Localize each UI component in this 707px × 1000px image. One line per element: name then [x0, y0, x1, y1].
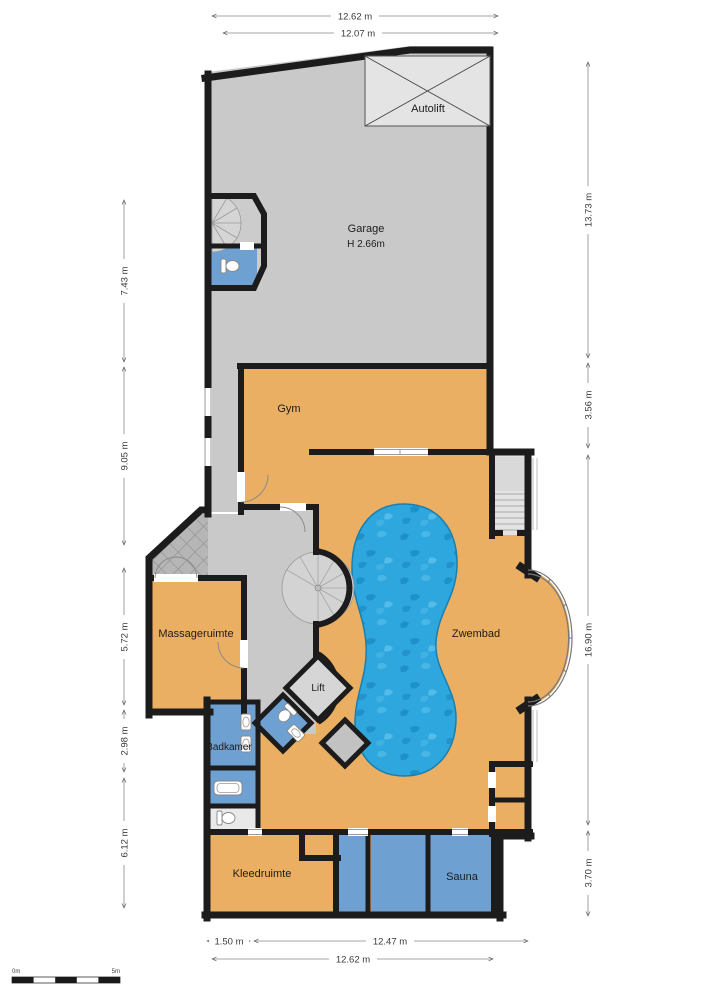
- svg-text:9.05 m: 9.05 m: [120, 441, 131, 470]
- window: [374, 448, 428, 456]
- kleedruimte-label: Kleedruimte: [233, 868, 292, 880]
- dimension-left-2: 9.05 m: [118, 367, 131, 545]
- dimension-left-5: 6.12 m: [118, 778, 131, 908]
- dimension-bottom-3: 12.62 m: [212, 953, 493, 966]
- room-shower-b: [371, 835, 426, 913]
- toilet-icon: [217, 811, 235, 825]
- dimension-top-1: 12.62 m: [212, 10, 498, 23]
- badkamer-label: Badkamer: [206, 742, 252, 753]
- svg-text:7.43 m: 7.43 m: [120, 266, 131, 295]
- svg-text:12.07 m: 12.07 m: [341, 29, 375, 40]
- floorplan-page: Autolift Garage H 2.66m Gym Zwembad Mass…: [0, 0, 707, 1000]
- autolift-label: Autolift: [411, 103, 445, 115]
- toilet-icon: [221, 259, 239, 273]
- door: [240, 242, 254, 250]
- svg-text:3.56 m: 3.56 m: [584, 390, 595, 419]
- room-massageruimte: [150, 578, 244, 712]
- garage-label: Garage: [348, 223, 385, 235]
- svg-text:3.70 m: 3.70 m: [584, 858, 595, 887]
- dimension-bottom-1: 1.50 m: [207, 935, 250, 948]
- scale-bar: 0m 5m: [12, 969, 120, 983]
- dimension-top-2: 12.07 m: [223, 27, 498, 40]
- dimension-left-1: 7.43 m: [118, 200, 131, 362]
- window: [204, 438, 212, 466]
- svg-text:13.73 m: 13.73 m: [584, 193, 595, 227]
- sauna-label: Sauna: [446, 871, 479, 883]
- floor-plan-canvas: Autolift Garage H 2.66m Gym Zwembad Mass…: [0, 0, 707, 1000]
- gym-label: Gym: [277, 403, 300, 415]
- svg-text:2.98 m: 2.98 m: [120, 726, 131, 755]
- dimension-right-2: 3.56 m: [582, 363, 595, 448]
- massageruimte-label: Massageruimte: [158, 628, 233, 640]
- dimension-left-3: 5.72 m: [118, 568, 131, 705]
- scale-end-label: 5m: [112, 969, 120, 975]
- window: [533, 710, 537, 762]
- window: [533, 458, 537, 530]
- dimension-right-4: 3.70 m: [582, 831, 595, 916]
- svg-text:16.90 m: 16.90 m: [584, 623, 595, 657]
- svg-text:12.62 m: 12.62 m: [338, 12, 372, 23]
- bay-window-floor: [528, 572, 570, 704]
- zwembad-label: Zwembad: [452, 628, 500, 640]
- door: [452, 828, 468, 836]
- window: [204, 388, 212, 416]
- dimension-right-1: 13.73 m: [582, 62, 595, 358]
- svg-text:5.72 m: 5.72 m: [120, 622, 131, 651]
- dimension-left-4: 2.98 m: [118, 710, 131, 772]
- autolift-platform: Autolift: [365, 56, 490, 126]
- scale-start-label: 0m: [12, 969, 20, 975]
- svg-text:12.47 m: 12.47 m: [373, 937, 407, 948]
- svg-text:1.50 m: 1.50 m: [214, 937, 243, 948]
- door: [348, 828, 368, 836]
- room-shower-a: [338, 835, 367, 913]
- dimension-bottom-2: 12.47 m: [254, 935, 528, 948]
- sink-icon: [241, 714, 251, 730]
- door: [488, 806, 496, 822]
- dimension-right-3: 16.90 m: [582, 455, 595, 825]
- lift-label: Lift: [311, 683, 325, 694]
- bathtub-icon: [214, 781, 242, 795]
- svg-text:12.62 m: 12.62 m: [336, 955, 370, 966]
- garage-height-label: H 2.66m: [347, 239, 385, 250]
- door: [248, 828, 262, 836]
- door: [488, 772, 496, 788]
- svg-text:6.12 m: 6.12 m: [120, 828, 131, 857]
